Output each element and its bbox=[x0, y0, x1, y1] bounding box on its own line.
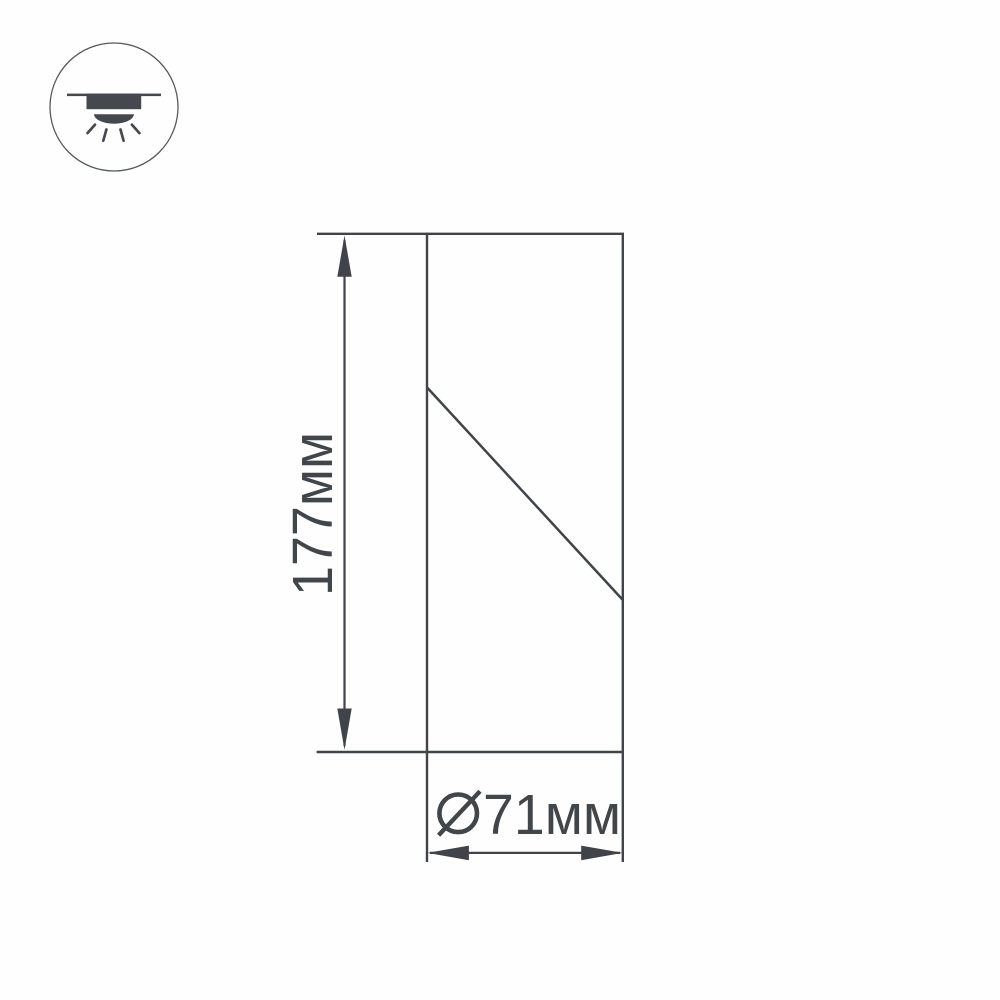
svg-text:177мм: 177мм bbox=[281, 432, 345, 596]
svg-text:71мм: 71мм bbox=[483, 783, 621, 847]
